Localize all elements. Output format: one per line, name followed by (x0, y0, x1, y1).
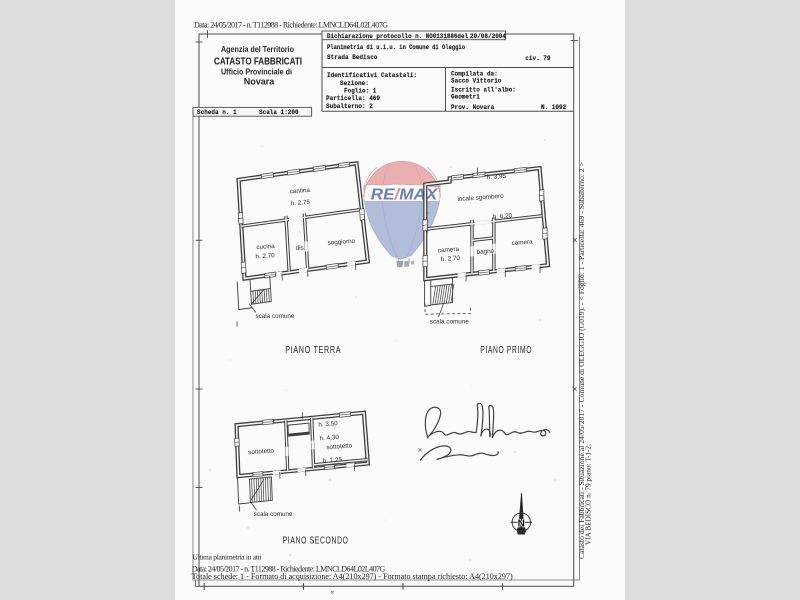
svg-text:Agenzia del Territorio: Agenzia del Territorio (221, 45, 294, 54)
svg-text:Planimetria di u.i.u. in Comun: Planimetria di u.i.u. in Comune di Olegg… (327, 44, 465, 51)
svg-text:scala comune: scala comune (255, 313, 294, 320)
svg-text:h. 2.70: h. 2.70 (255, 252, 275, 260)
svg-text:Totale schede: 1 - Formato di: Totale schede: 1 - Formato di acquisizio… (192, 572, 513, 581)
svg-text:Geometri: Geometri (451, 94, 480, 101)
svg-text:Iscritto all'albo:: Iscritto all'albo: (451, 87, 516, 94)
svg-text:Scheda n. 1: Scheda n. 1 (197, 109, 237, 116)
svg-text:h. 3,95: h. 3,95 (487, 173, 507, 181)
svg-text:h. 2.75: h. 2.75 (291, 199, 311, 207)
svg-text:Prov. Novara: Prov. Novara (451, 104, 495, 111)
svg-text:h. 4,30: h. 4,30 (319, 434, 339, 442)
svg-text:cucina: cucina (256, 243, 275, 251)
svg-text:Compilata da:: Compilata da: (451, 71, 498, 78)
svg-text:scala comune: scala comune (430, 318, 469, 325)
svg-text:Sacco Vittorio: Sacco Vittorio (451, 78, 502, 85)
svg-text:soggiorno: soggiorno (327, 238, 356, 247)
svg-text:h. 6,20: h. 6,20 (493, 212, 513, 220)
svg-text:VIA BEDISCO n. 79 piano: T-1-2: VIA BEDISCO n. 79 piano: T-1-2; (585, 444, 593, 545)
svg-text:N: N (518, 518, 525, 529)
svg-text:20/08/2004: 20/08/2004 (470, 33, 506, 40)
svg-text:1999-01: 1999-01 (577, 274, 582, 289)
svg-text:CATASTO FABBRICATI: CATASTO FABBRICATI (214, 56, 302, 68)
svg-text:locale sgombero: locale sgombero (457, 193, 504, 203)
svg-text:h. 1,25: h. 1,25 (323, 456, 343, 464)
svg-text:Data: 24/05/2017 - n. T112988: Data: 24/05/2017 - n. T112988 - Richiede… (194, 21, 388, 30)
svg-text:Strada Bedisco: Strada Bedisco (327, 54, 378, 61)
svg-text:camera: camera (511, 239, 533, 247)
svg-text:N. 1092: N. 1092 (541, 104, 567, 111)
svg-text:RE/MAX: RE/MAX (371, 187, 439, 204)
svg-text:Novara: Novara (244, 77, 276, 87)
svg-text:h. 3,50: h. 3,50 (318, 420, 338, 428)
svg-text:PIANO TERRA: PIANO TERRA (285, 344, 341, 356)
svg-text:Ultima planimetria in atti: Ultima planimetria in atti (193, 553, 262, 562)
svg-text:Identificativi Catastali:: Identificativi Catastali: (327, 72, 417, 79)
svg-text:Sezione:: Sezione: (340, 80, 369, 87)
svg-text:camera: camera (438, 246, 460, 254)
svg-text:Subalterno: 2: Subalterno: 2 (326, 103, 373, 110)
svg-text:PIANO SECONDO: PIANO SECONDO (283, 535, 349, 547)
svg-text:civ. 79: civ. 79 (525, 55, 551, 62)
svg-text:Scala 1:200: Scala 1:200 (259, 109, 299, 116)
svg-text:h. 2.70: h. 2.70 (441, 255, 461, 263)
svg-text:bagno: bagno (476, 248, 494, 256)
svg-text:Particella: 469: Particella: 469 (326, 95, 380, 102)
svg-text:Ufficio Provinciale di: Ufficio Provinciale di (221, 68, 292, 77)
svg-text:Foglio: 1: Foglio: 1 (344, 88, 377, 95)
svg-text:sottotetto: sottotetto (248, 447, 275, 456)
svg-text:sottotetto: sottotetto (326, 442, 353, 451)
svg-text:cantina: cantina (290, 187, 311, 195)
svg-text:dis.: dis. (295, 244, 306, 252)
svg-text:PIANO PRIMO: PIANO PRIMO (480, 344, 532, 356)
svg-text:Dichiarazione protocollo n. NO: Dichiarazione protocollo n. NO0131886del (327, 33, 468, 40)
svg-text:scala comune: scala comune (254, 511, 293, 518)
